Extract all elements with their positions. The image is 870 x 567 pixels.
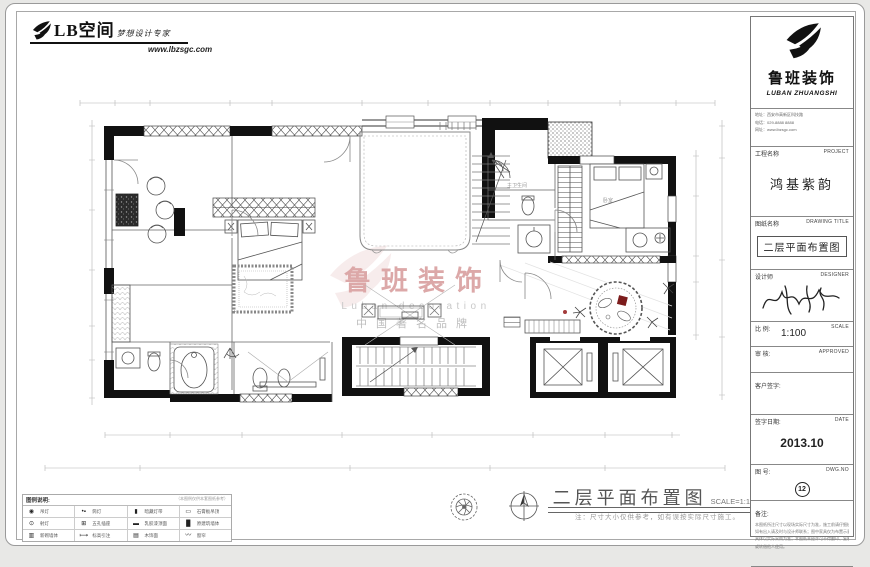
floor-plan-drawing: 鲁班装饰 Luban decoration 中国著名品牌 (20, 60, 750, 484)
paint-icon: ▬ (130, 520, 143, 528)
stair-lower (356, 347, 476, 386)
legend-item: ⊙射灯 (23, 518, 75, 529)
header-tagline: 梦想设计专家 (117, 28, 171, 41)
newwall-icon: ▥ (25, 532, 38, 540)
watermark: 鲁班装饰 Luban decoration 中国著名品牌 (330, 246, 492, 331)
dwg-number: 12 (795, 482, 810, 497)
legend-header-note: （本图例仅供本套图纸参考） (176, 496, 228, 504)
footer-note: 注：尺寸大小仅供参考，如有误按实际尺寸施工。 (540, 511, 775, 521)
legend-item: ◉吊灯 (23, 506, 75, 517)
title-block-remark: 备注: 本图纸所注尺寸以现场实际尺寸为准，施工前请仔细核对， 如有出入请及时与设… (751, 501, 853, 567)
luban-leaf-icon (781, 19, 823, 61)
title-block-project: 工程名称PROJECT 鸿基紫韵 (751, 147, 853, 217)
title-block-date: 签字日期:DATE 2013.10 (751, 415, 853, 465)
spotlight-icon: ⊙ (25, 520, 38, 528)
drawing-footer-title: 二层平面布置图SCALE=1:100 (548, 484, 763, 513)
company-logo: LB空间 梦想设计专家 www.lbzsgc.com (30, 16, 220, 52)
room-label-bedroom: 卧室 (603, 197, 613, 204)
footer-title-text: 二层平面布置图 (553, 488, 707, 508)
wall-icon: █ (182, 520, 195, 528)
title-block-brand-en: LUBAN ZHUANGSHI (755, 90, 849, 97)
legend-item: ▬乳胶漆顶面 (128, 518, 180, 529)
elevator-shafts (533, 336, 673, 395)
legend-item: █原建筑墙体 (180, 518, 231, 529)
date-value: 2013.10 (755, 436, 849, 450)
legend-header: 图例说明: (26, 496, 50, 504)
legend-item: ▤木饰面 (128, 530, 180, 541)
watermark-sub: Luban decoration (341, 301, 490, 312)
title-block-approved: 审 核:APPROVED (751, 347, 853, 373)
ornament-icon (451, 494, 477, 520)
legend-item: ⟼标高引注 (75, 530, 127, 541)
title-block-logo: 鲁班装饰 LUBAN ZHUANGSHI (751, 17, 853, 109)
legend-table: 图例说明: （本图例仅供本套图纸参考） ◉吊灯 •▪筒灯 ▮暗藏灯带 ▭石膏板吊… (22, 494, 232, 542)
legend-row: ⊙射灯 ⊞五孔插座 ▬乳胶漆顶面 █原建筑墙体 (23, 518, 231, 530)
gypsum-icon: ▭ (182, 508, 195, 516)
designer-signature (755, 282, 847, 316)
legend-row: ▥新砌墙体 ⟼标高引注 ▤木饰面 〰窗帘 (23, 530, 231, 541)
compass-icon (509, 491, 539, 521)
legend-item: •▪筒灯 (75, 506, 127, 517)
elevation-icon: ⟼ (77, 532, 90, 540)
title-block-brand: 鲁班装饰 (755, 67, 849, 88)
curtain-icon: 〰 (182, 532, 195, 540)
title-block-drawing: 图纸名称DRAWING TITLE 二层平面布置图 (751, 217, 853, 270)
header-website: www.lbzsgc.com (148, 45, 220, 54)
title-block-client-sign: 客户签字: (751, 373, 853, 415)
watermark-brand: 鲁班装饰 (344, 266, 492, 296)
striplight-icon: ▮ (130, 508, 143, 516)
downlight-icon: •▪ (77, 508, 90, 516)
bedroom-right (558, 164, 670, 252)
title-block-dwg-no: 图 号:DWG.NO 12 (751, 465, 853, 501)
title-block: 鲁班装饰 LUBAN ZHUANGSHI 地址：西安市高新区科技路 电话：029… (750, 16, 854, 537)
project-name: 鸿基紫韵 (755, 174, 849, 193)
chandelier-icon: ◉ (25, 508, 38, 516)
void-opening (360, 132, 470, 253)
stair-upper (440, 122, 510, 244)
title-block-company-info: 地址：西安市高新区科技路 电话：029-8888 8888 网址：www.lbz… (751, 109, 853, 147)
legend-item: ▮暗藏灯带 (128, 506, 180, 517)
legend-item: ▥新砌墙体 (23, 530, 75, 541)
header-brand: LB空间 (54, 16, 115, 41)
drawing-title: 二层平面布置图 (757, 236, 847, 257)
legend-item: 〰窗帘 (180, 530, 231, 541)
wood-icon: ▤ (130, 532, 143, 540)
legend-row: ◉吊灯 •▪筒灯 ▮暗藏灯带 ▭石膏板吊顶 (23, 506, 231, 518)
legend-item: ⊞五孔插座 (75, 518, 127, 529)
leaf-icon (30, 19, 52, 41)
socket-icon: ⊞ (77, 520, 90, 528)
title-block-scale: 比 例:SCALE 1:100 (751, 322, 853, 347)
room-label-bath: 主卫生间 (507, 182, 527, 189)
footer-underline (548, 507, 763, 508)
title-block-designer: 设计师DESIGNER (751, 270, 853, 322)
footer-symbols (448, 486, 558, 530)
scale-value: 1:100 (781, 328, 806, 339)
legend-item: ▭石膏板吊顶 (180, 506, 231, 517)
bedroom-master (225, 220, 328, 387)
